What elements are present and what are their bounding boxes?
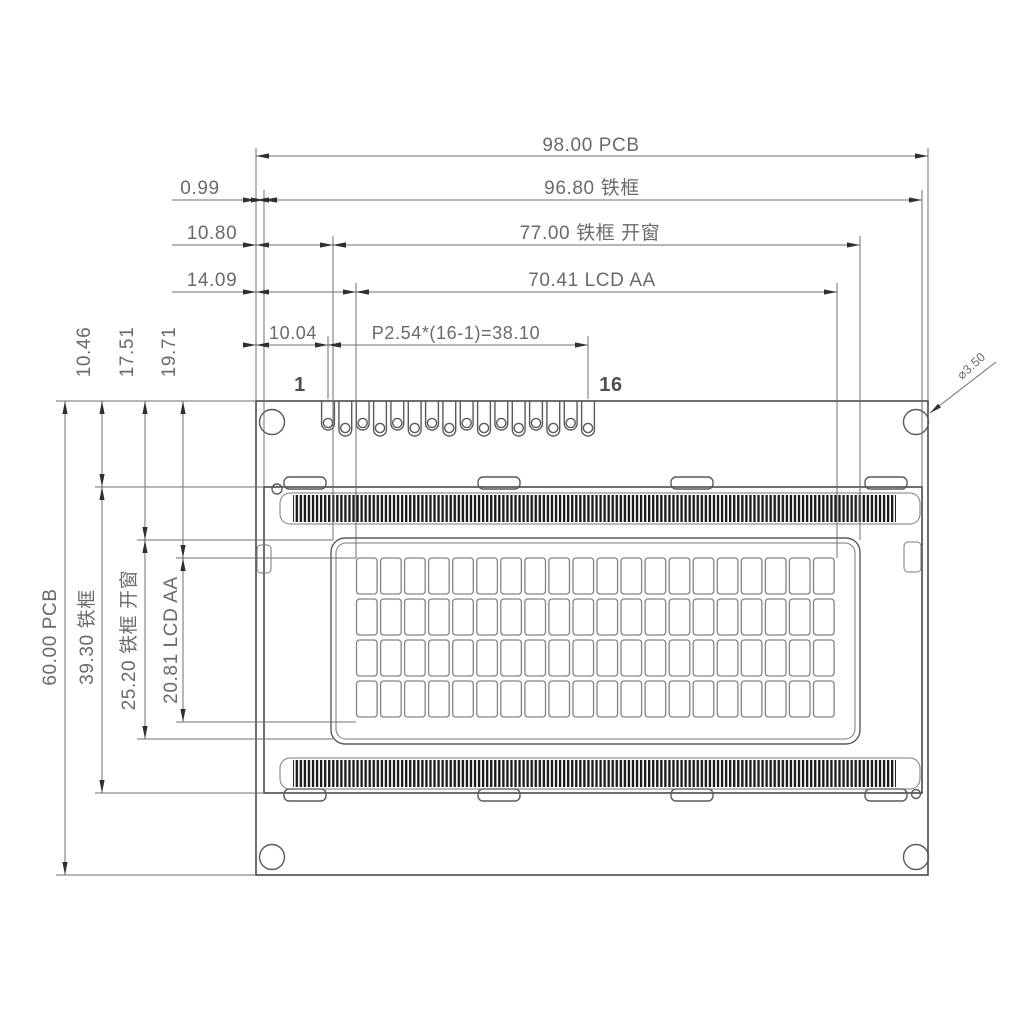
char-cell: [573, 599, 594, 635]
char-cell: [645, 640, 666, 676]
dim-window-top-offset: 17.51: [117, 327, 138, 378]
dim-arrow: [909, 197, 922, 202]
char-cell: [621, 558, 642, 594]
char-cell: [525, 681, 546, 717]
mounting-hole: [260, 410, 285, 435]
char-cell: [717, 681, 738, 717]
char-cell: [549, 558, 570, 594]
dim-aa-width: 70.41 LCD AA: [528, 270, 656, 291]
dim-arrow: [243, 242, 256, 247]
dim-arrow: [847, 242, 860, 247]
char-cell: [621, 599, 642, 635]
char-cell: [597, 640, 618, 676]
window-inner: [336, 543, 855, 739]
char-cell: [549, 599, 570, 635]
dim-aa-offset: 14.09: [187, 270, 238, 291]
pin-hole: [497, 418, 506, 427]
char-cell: [789, 640, 810, 676]
pin-hole: [549, 423, 558, 432]
char-cell: [573, 558, 594, 594]
bezel-clip-right: [904, 542, 921, 572]
top-crimp-hatch: [293, 495, 896, 522]
char-cell: [669, 681, 690, 717]
dim-arrow: [180, 545, 185, 558]
dim-arrow: [333, 242, 346, 247]
dim-arrow: [243, 342, 256, 347]
mounting-hole: [904, 410, 929, 435]
char-cell: [741, 640, 762, 676]
char-cell: [405, 640, 426, 676]
char-cell: [621, 681, 642, 717]
dim-arrow: [915, 153, 928, 158]
char-cell: [381, 681, 402, 717]
char-cell: [645, 558, 666, 594]
char-cell: [717, 599, 738, 635]
char-cell: [429, 681, 450, 717]
char-cell: [381, 558, 402, 594]
char-cell: [789, 558, 810, 594]
dim-pin-pitch: P2.54*(16-1)=38.10: [372, 323, 540, 343]
dim-arrow: [62, 401, 67, 414]
char-cell: [789, 681, 810, 717]
char-cell: [765, 558, 786, 594]
display-window: [331, 538, 860, 744]
pin-hole: [393, 418, 402, 427]
char-cell: [693, 599, 714, 635]
char-cell: [477, 599, 498, 635]
char-cell: [621, 640, 642, 676]
char-cell: [693, 558, 714, 594]
char-cell: [501, 558, 522, 594]
dim-aa-top-offset: 19.71: [159, 327, 180, 378]
char-grid: [357, 558, 835, 717]
char-cell: [597, 681, 618, 717]
char-cell: [525, 599, 546, 635]
char-cell: [573, 640, 594, 676]
dim-arrow: [142, 726, 147, 739]
dim-arrow: [256, 242, 269, 247]
char-cell: [669, 558, 690, 594]
bottom-crimp-hatch: [293, 760, 896, 787]
char-cell: [549, 681, 570, 717]
dim-arrow: [256, 153, 269, 158]
char-cell: [501, 599, 522, 635]
pin-hole: [445, 423, 454, 432]
dim-pcb-height: 60.00 PCB: [40, 588, 61, 685]
char-cell: [814, 558, 835, 594]
dim-window-height: 25.20 铁框 开窗: [118, 570, 140, 711]
pin-1-label: 1: [294, 374, 306, 396]
pcb-board: [256, 401, 928, 875]
window-outer: [331, 538, 860, 744]
char-cell: [573, 681, 594, 717]
bezel-hole-top-left: [272, 484, 282, 494]
char-cell: [741, 681, 762, 717]
dim-arrow: [320, 242, 333, 247]
char-cell: [453, 599, 474, 635]
char-cell: [597, 558, 618, 594]
dim-arrow: [256, 289, 269, 294]
dim-frame-top-offset: 10.46: [74, 327, 95, 378]
dim-arrow: [256, 342, 269, 347]
dim-arrow: [328, 342, 341, 347]
char-cell: [814, 640, 835, 676]
bezel-tabs: [284, 477, 907, 801]
dim-frame-width: 96.80 铁框: [544, 177, 640, 199]
char-cell: [453, 558, 474, 594]
char-cell: [645, 681, 666, 717]
char-cell: [669, 599, 690, 635]
char-cell: [669, 640, 690, 676]
char-cell: [525, 558, 546, 594]
pin-hole: [462, 418, 471, 427]
hole-diameter-label: ⌀3.50: [954, 350, 988, 382]
dim-arrow: [180, 558, 185, 571]
char-cell: [477, 558, 498, 594]
char-cell: [405, 599, 426, 635]
dim-frame-offset: 0.99: [180, 178, 219, 199]
dim-arrow: [343, 289, 356, 294]
dim-arrow: [99, 401, 104, 414]
char-cell: [693, 681, 714, 717]
hole-callout: ⌀3.50: [929, 350, 996, 415]
pin-hole: [583, 423, 592, 432]
char-cell: [453, 681, 474, 717]
pin-hole: [341, 423, 350, 432]
char-cell: [717, 640, 738, 676]
char-cell: [405, 681, 426, 717]
char-cell: [717, 558, 738, 594]
dim-arrow: [62, 862, 67, 875]
char-cell: [453, 640, 474, 676]
dim-frame-height: 39.30 铁框: [76, 589, 98, 685]
bezel-hole-bottom-right: [912, 790, 921, 799]
pin-16-label: 16: [599, 374, 622, 396]
char-cell: [405, 558, 426, 594]
dim-pcb-width: 98.00 PCB: [542, 135, 639, 156]
char-cell: [477, 681, 498, 717]
dim-pin-offset: 10.04: [269, 323, 317, 343]
char-cell: [525, 640, 546, 676]
pin-hole: [323, 418, 332, 427]
char-cell: [549, 640, 570, 676]
char-cell: [501, 681, 522, 717]
dim-window-width: 77.00 铁框 开窗: [520, 222, 661, 244]
char-cell: [693, 640, 714, 676]
mounting-hole: [904, 845, 929, 870]
char-cell: [645, 599, 666, 635]
char-cell: [357, 681, 378, 717]
char-cell: [477, 640, 498, 676]
char-cell: [357, 640, 378, 676]
dim-arrow: [142, 401, 147, 414]
char-cell: [789, 599, 810, 635]
dim-arrow: [180, 401, 185, 414]
mounting-hole: [260, 845, 285, 870]
char-cell: [765, 599, 786, 635]
dim-arrow: [142, 540, 147, 553]
pin-hole: [531, 418, 540, 427]
dim-arrow: [824, 289, 837, 294]
char-cell: [814, 599, 835, 635]
pin-hole: [427, 418, 436, 427]
dim-window-offset: 10.80: [187, 223, 238, 244]
char-cell: [501, 640, 522, 676]
bezel-tab-bottom: [478, 789, 520, 801]
char-cell: [357, 599, 378, 635]
bezel-tab-bottom: [865, 789, 907, 801]
char-cell: [429, 599, 450, 635]
dim-arrow: [99, 487, 104, 500]
dim-aa-height: 20.81 LCD AA: [161, 576, 182, 704]
char-cell: [814, 681, 835, 717]
dim-arrow: [356, 289, 369, 294]
pin-hole: [514, 423, 523, 432]
pin-hole: [479, 423, 488, 432]
char-cell: [429, 558, 450, 594]
pin-hole: [375, 423, 384, 432]
dim-arrow: [99, 474, 104, 487]
char-cell: [765, 640, 786, 676]
pin-hole: [566, 418, 575, 427]
dim-arrow: [142, 527, 147, 540]
pin-hole: [358, 418, 367, 427]
dim-arrow: [99, 780, 104, 793]
dim-arrow: [315, 342, 328, 347]
char-cell: [597, 599, 618, 635]
dim-arrow: [180, 709, 185, 722]
bezel-tab-bottom: [671, 789, 713, 801]
char-cell: [357, 558, 378, 594]
dim-arrow: [251, 197, 264, 202]
dim-arrow: [575, 342, 588, 347]
char-cell: [381, 640, 402, 676]
char-cell: [381, 599, 402, 635]
lcd-bezel: [257, 477, 922, 801]
char-cell: [429, 640, 450, 676]
pcb-outline: [256, 401, 928, 875]
bezel-tab-bottom: [284, 789, 326, 801]
dimension-labels: 98.00 PCB 96.80 铁框 0.99 77.00 铁框 开窗 10.8…: [40, 135, 660, 710]
pin-hole: [410, 423, 419, 432]
char-cell: [765, 681, 786, 717]
char-cell: [741, 558, 762, 594]
char-cell: [741, 599, 762, 635]
drawing-canvas: ⌀3.50 98.00 PCB 96.80 铁框 0.99 77.00 铁框 开…: [0, 0, 1024, 1024]
pin-header: [322, 401, 595, 436]
dim-arrow: [243, 289, 256, 294]
lcd-module-drawing: ⌀3.50 98.00 PCB 96.80 铁框 0.99 77.00 铁框 开…: [0, 0, 1024, 1024]
